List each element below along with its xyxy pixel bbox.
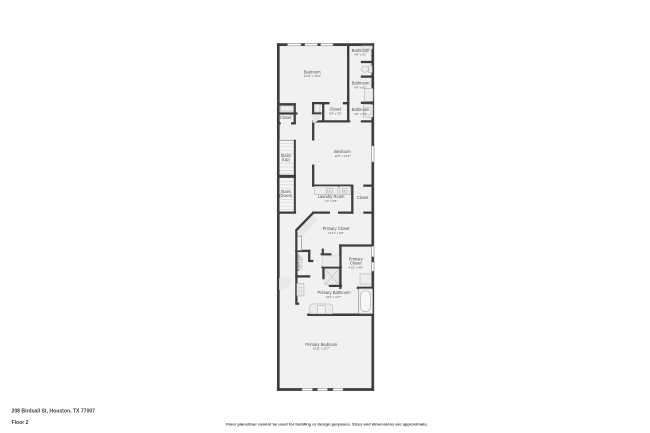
svg-text:Closet: Closet — [280, 115, 292, 120]
svg-text:D: D — [329, 189, 331, 193]
svg-text:7'4" x 5'8": 7'4" x 5'8" — [325, 199, 338, 203]
svg-text:12'5" x 13'3": 12'5" x 13'3" — [335, 154, 351, 158]
svg-text:14'11" x 10'4": 14'11" x 10'4" — [303, 74, 320, 78]
svg-text:6'10" x 4'8": 6'10" x 4'8" — [349, 266, 363, 270]
svg-text:Closet: Closet — [357, 195, 369, 200]
svg-text:4'8" x 7'3": 4'8" x 7'3" — [354, 112, 367, 116]
svg-text:3'1" x 6'2": 3'1" x 6'2" — [300, 256, 304, 269]
svg-text:4'8" x 5'1": 4'8" x 5'1" — [354, 53, 367, 57]
svg-text:208 Birdsall St, Houston, TX 7: 208 Birdsall St, Houston, TX 77007 — [12, 409, 96, 415]
svg-text:4'8" x 8'1": 4'8" x 8'1" — [354, 85, 367, 89]
svg-text:3'4" x 3'9": 3'4" x 3'9" — [329, 112, 342, 116]
svg-text:(Up): (Up) — [282, 157, 291, 162]
svg-text:10'2" x 12'7": 10'2" x 12'7" — [326, 295, 342, 299]
svg-text:(Down): (Down) — [279, 193, 293, 198]
svg-text:14'11" x 23'7": 14'11" x 23'7" — [312, 347, 329, 351]
svg-text:14'11" x 6'8": 14'11" x 6'8" — [328, 231, 344, 235]
svg-text:Floor 2: Floor 2 — [12, 420, 29, 426]
svg-text:Floor plans/tour cannot be use: Floor plans/tour cannot be used for buil… — [226, 421, 428, 426]
